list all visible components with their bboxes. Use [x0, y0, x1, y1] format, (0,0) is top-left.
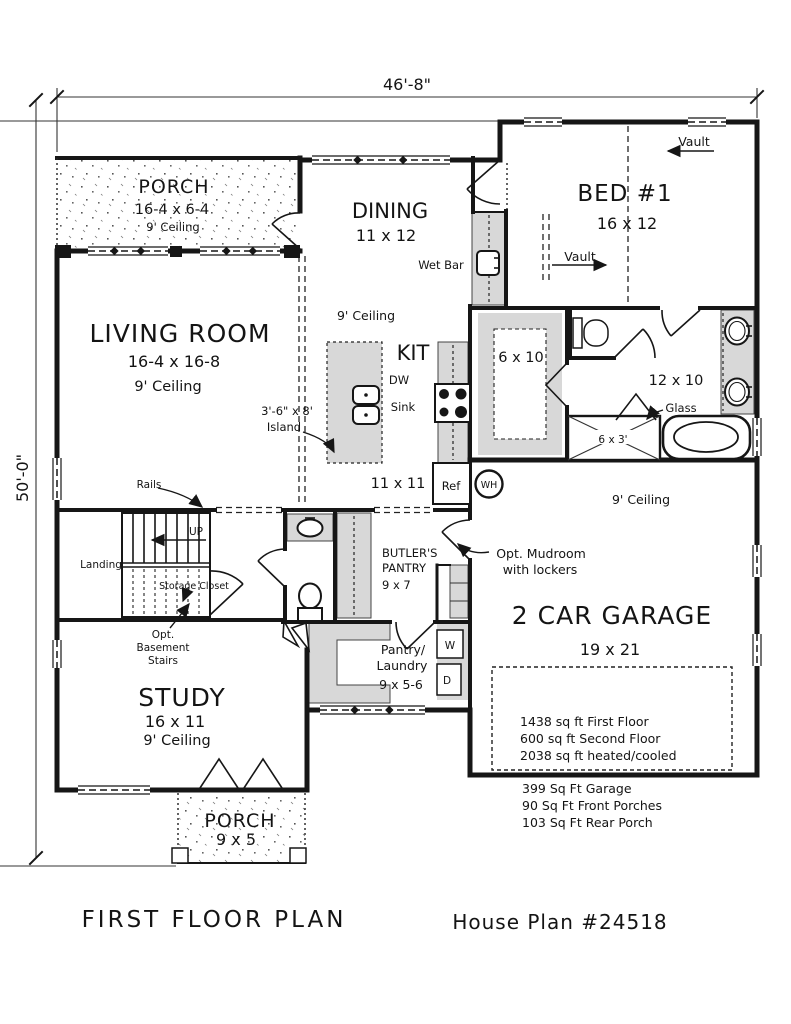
laundry-line1: Pantry/ — [381, 642, 426, 657]
garage-size: 19 x 21 — [580, 640, 640, 659]
room-front-porch: PORCH 16-4 x 6-4 9' Ceiling — [135, 176, 210, 234]
floor-plan-page: 46'-8" 50'-0" — [0, 0, 791, 1024]
window-glyph — [88, 246, 168, 257]
opt-basement-line3: Stairs — [148, 655, 178, 667]
porch-post — [290, 848, 306, 863]
bath-glass-label: Glass — [665, 401, 696, 415]
window-glyph — [52, 640, 63, 668]
area-second-floor: 600 sq ft Second Floor — [520, 731, 661, 746]
window-glyph — [688, 117, 726, 128]
study-size: 16 x 11 — [145, 712, 205, 731]
bath-toilet — [573, 318, 582, 348]
kitchen-name: KIT — [397, 341, 430, 365]
window-glyph — [320, 705, 425, 716]
overall-width-dimension: 46'-8" — [383, 75, 431, 94]
rear-porch-name: PORCH — [204, 810, 275, 832]
study-ceiling: 9' Ceiling — [143, 733, 210, 749]
powder-sink — [298, 520, 323, 537]
storage-closet-label: Storage Closet — [159, 581, 229, 592]
garage-ceiling: 9' Ceiling — [612, 492, 670, 507]
bath-size: 12 x 10 — [649, 373, 704, 389]
room-butlers-pantry: BUTLER'S PANTRY 9 x 7 — [382, 546, 437, 592]
kitchen-sink-label: Sink — [391, 400, 416, 414]
water-heater-label: WH — [481, 480, 498, 491]
area-total: 2038 sq ft heated/cooled — [520, 748, 677, 763]
kitchen-size: 11 x 11 — [371, 476, 426, 492]
washer-label: W — [445, 640, 456, 652]
kitchen-ceiling: 9' Ceiling — [337, 308, 395, 323]
front-porch-size: 16-4 x 6-4 — [135, 202, 209, 218]
room-study: STUDY 16 x 11 9' Ceiling — [138, 683, 226, 749]
window-glyph — [752, 545, 763, 577]
window-glyph — [200, 246, 280, 257]
dryer-label: D — [443, 675, 451, 687]
landing-label: Landing — [80, 559, 122, 571]
plan-number: House Plan #24518 — [452, 910, 667, 934]
kitchen-island-note1: 3'-6" x 8' — [261, 404, 313, 418]
room-garage: 9' Ceiling 2 CAR GARAGE 19 x 21 1438 sq … — [512, 492, 712, 830]
porch-post — [172, 848, 188, 863]
front-porch-name: PORCH — [138, 176, 209, 198]
area-front-porches: 90 Sq Ft Front Porches — [522, 798, 662, 813]
opt-basement-line2: Basement — [136, 642, 189, 654]
window-glyph — [52, 458, 63, 500]
floor-plan-canvas: 46'-8" 50'-0" — [0, 0, 791, 1024]
bed1-size: 16 x 12 — [597, 214, 657, 233]
window-glyph — [312, 155, 450, 166]
staircase — [122, 513, 243, 617]
room-dining: DINING 11 x 12 Wet Bar — [352, 199, 464, 272]
window-glyph — [524, 117, 562, 128]
area-rear-porch: 103 Sq Ft Rear Porch — [522, 815, 653, 830]
wet-bar-sink — [477, 251, 499, 275]
living-size: 16-4 x 16-8 — [128, 352, 220, 371]
area-garage: 399 Sq Ft Garage — [522, 781, 632, 796]
room-closet: 6 x 10 — [498, 350, 543, 366]
footer: FIRST FLOOR PLAN House Plan #24518 — [82, 907, 668, 934]
room-living: LIVING ROOM 16-4 x 16-8 9' Ceiling — [89, 319, 270, 395]
bed1-vault-label: Vault — [678, 134, 710, 149]
front-porch-ceiling: 9' Ceiling — [146, 220, 199, 234]
sheet-title: FIRST FLOOR PLAN — [82, 907, 347, 933]
butlers-pantry-size: 9 x 7 — [382, 578, 411, 592]
fridge-label: Ref — [442, 479, 462, 493]
dining-size: 11 x 12 — [356, 226, 416, 245]
closet-size: 6 x 10 — [498, 350, 543, 366]
powder-toilet — [299, 584, 321, 609]
area-first-floor: 1438 sq ft First Floor — [520, 714, 649, 729]
shower-size: 6 x 3' — [598, 434, 627, 446]
mudroom-line2: with lockers — [503, 562, 578, 577]
bed1-name: BED #1 — [577, 181, 672, 207]
wet-bar-label: Wet Bar — [418, 258, 464, 272]
window-glyph — [78, 785, 150, 796]
overall-depth-dimension: 50'-0" — [13, 454, 32, 502]
window-glyph — [752, 418, 763, 456]
room-bed1: BED #1 16 x 12 Vault Vault — [564, 134, 710, 264]
living-ceiling: 9' Ceiling — [134, 379, 201, 395]
window-glyph — [752, 634, 763, 666]
laundry-line2: Laundry — [377, 658, 429, 673]
mudroom-line1: Opt. Mudroom — [496, 546, 586, 561]
kitchen-dw-label: DW — [389, 373, 409, 387]
bed1-vault-label: Vault — [564, 249, 596, 264]
rails-label: Rails — [137, 479, 162, 491]
butlers-pantry-line1: BUTLER'S — [382, 546, 437, 560]
up-label: UP — [189, 526, 203, 538]
butlers-pantry-line2: PANTRY — [382, 561, 427, 575]
study-name: STUDY — [138, 683, 226, 712]
garage-name: 2 CAR GARAGE — [512, 601, 712, 630]
opt-basement-line1: Opt. — [152, 629, 174, 641]
kitchen-island-note2: Island — [267, 420, 301, 434]
rear-porch-size: 9 x 5 — [216, 830, 256, 849]
mudroom-note: Opt. Mudroom with lockers — [496, 546, 586, 577]
dining-name: DINING — [352, 199, 428, 223]
laundry-size: 9 x 5-6 — [379, 677, 423, 692]
living-name: LIVING ROOM — [89, 319, 270, 348]
